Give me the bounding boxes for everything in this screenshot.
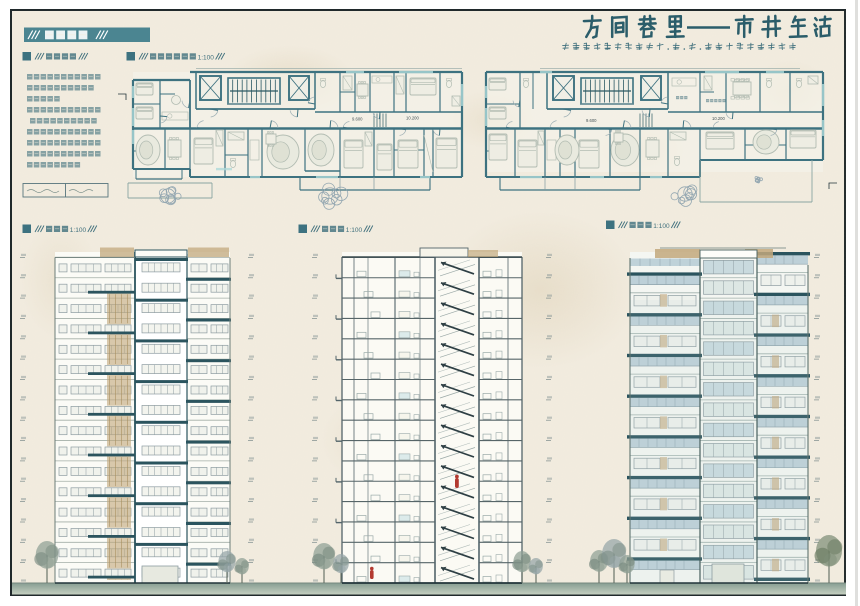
svg-text:9.600: 9.600 [586, 118, 597, 123]
svg-text:1:100: 1:100 [198, 55, 215, 62]
svg-text:10.200: 10.200 [406, 116, 419, 121]
svg-text:1:100: 1:100 [346, 227, 363, 234]
svg-text:9.600: 9.600 [352, 117, 363, 122]
svg-text:10.200: 10.200 [712, 116, 725, 121]
svg-text:1:100: 1:100 [653, 223, 670, 230]
svg-text:1:100: 1:100 [70, 227, 87, 234]
